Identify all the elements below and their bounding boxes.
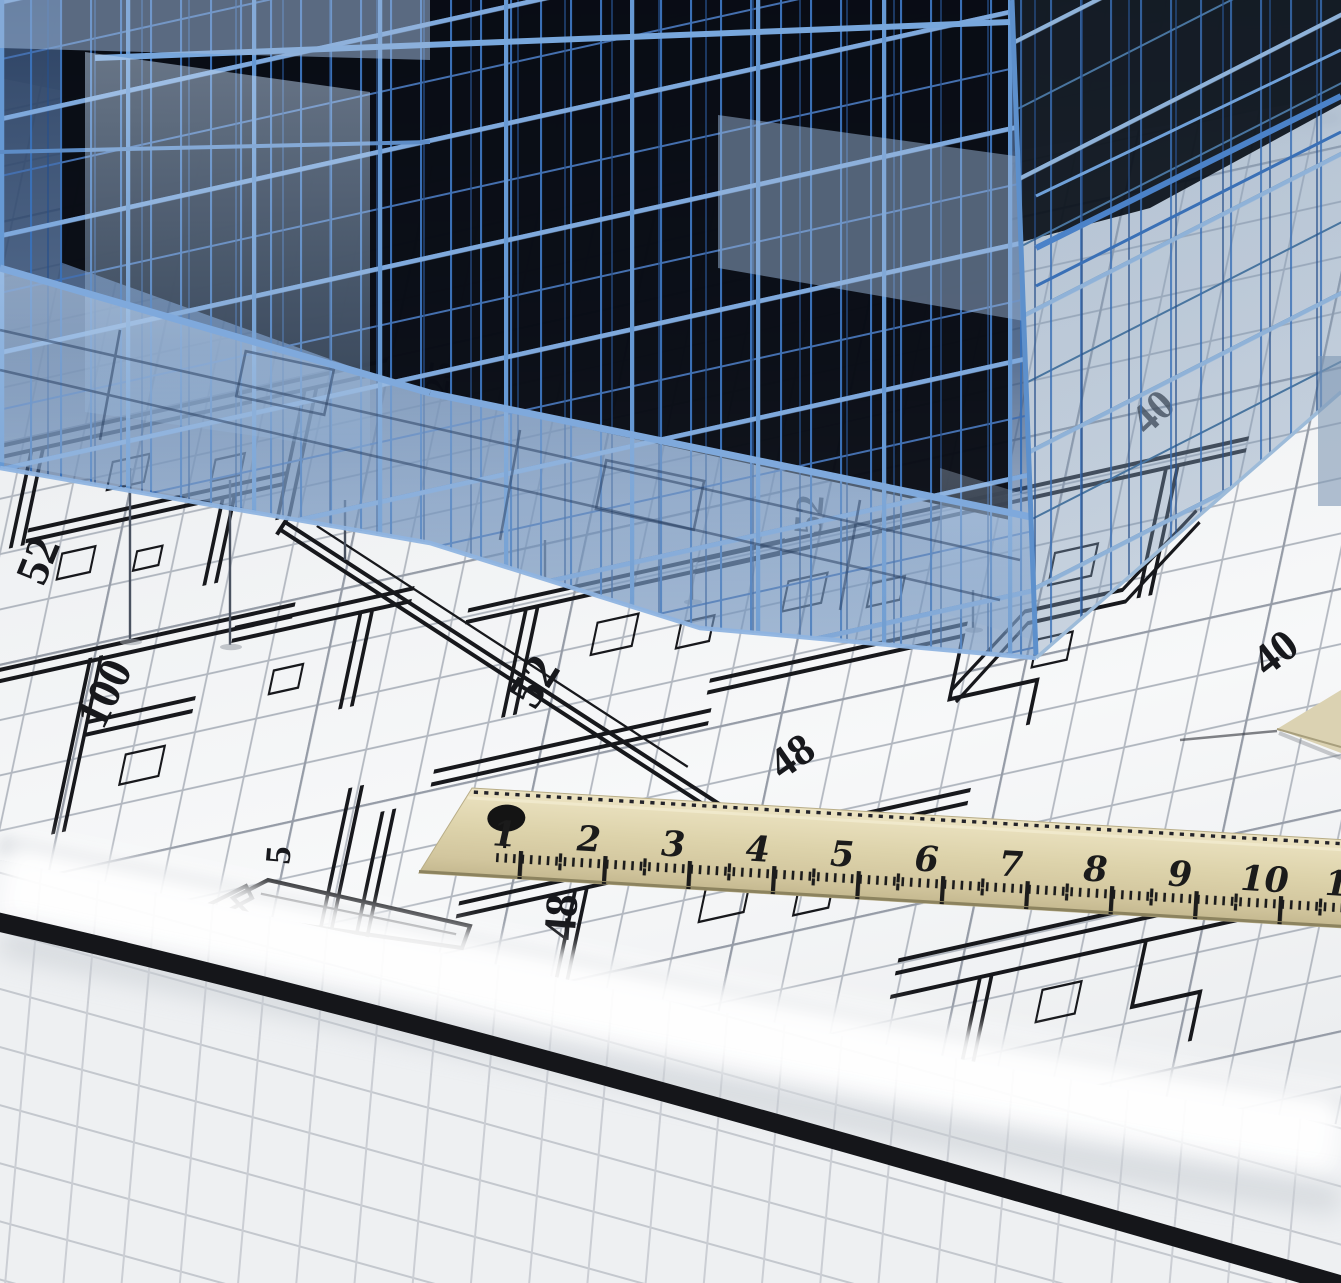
ruler-number: 10 bbox=[1235, 858, 1292, 901]
blueprint-scene: 52 100 52 48 40 5 48 40 52 25 bbox=[0, 0, 1341, 1283]
label-5-small: 5 bbox=[257, 844, 298, 865]
right-edge-column bbox=[1318, 356, 1341, 506]
scene-svg: 52 100 52 48 40 5 48 40 52 25 bbox=[0, 0, 1341, 1283]
